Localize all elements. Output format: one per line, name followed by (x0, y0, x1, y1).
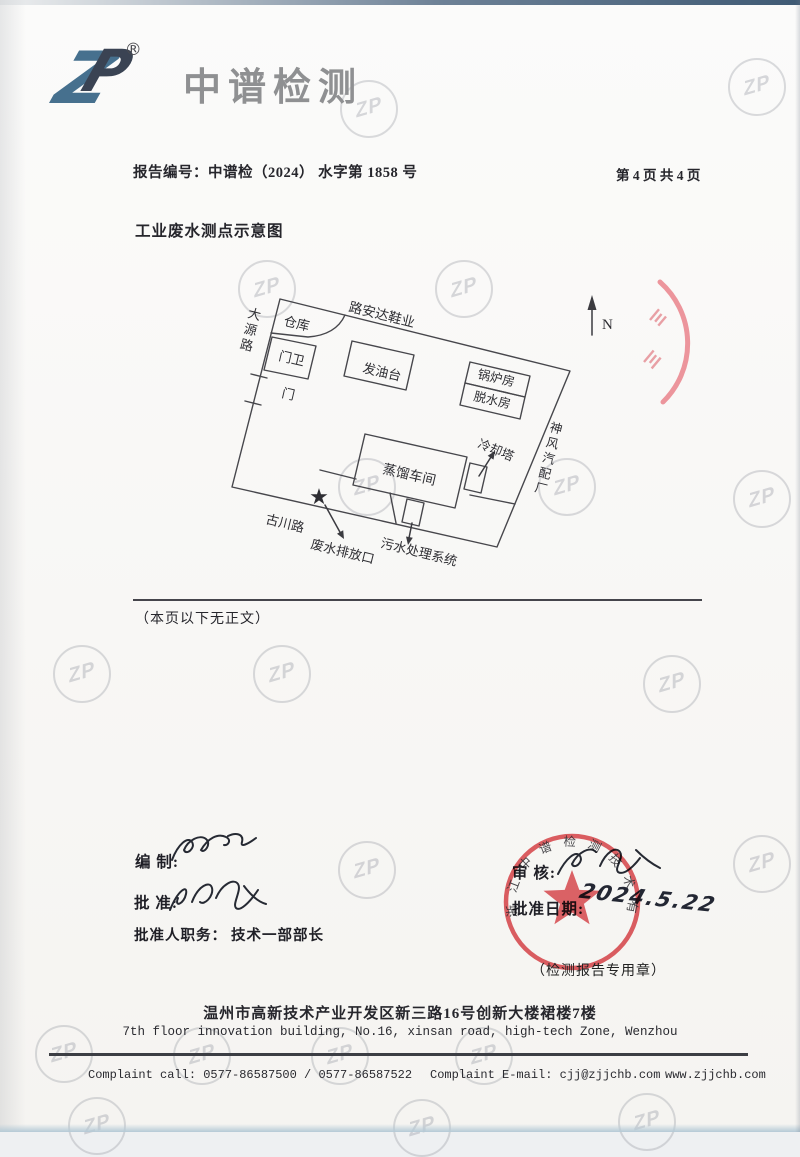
section-title: 工业废水测点示意图 (135, 219, 284, 241)
approver-title-label: 批准人职务： (134, 928, 227, 944)
sewage-treatment-box (402, 499, 424, 526)
watermark-zp-logo: ZP (338, 841, 396, 899)
label-gate: 门 (280, 385, 296, 403)
complaint-phone: Complaint call: 0577-86587500 / 0577-865… (88, 1068, 412, 1082)
label-oil-platform: 发油台 (361, 360, 402, 383)
inner-wall-right (470, 495, 515, 504)
north-arrowhead-icon (588, 295, 597, 310)
company-name: 中谱检测 (183, 56, 363, 111)
seal-caption: （检测报告专用章） (531, 960, 666, 980)
label-boiler-room: 锅炉房 (476, 366, 516, 389)
scan-edge-bottom (0, 1124, 800, 1132)
address-english: 7th floor innovation building, No.16, xi… (0, 1025, 800, 1039)
edge-seal-partial (598, 248, 718, 418)
address-chinese: 温州市高新技术产业开发区新三路16号创新大楼裙楼7楼 (0, 1002, 800, 1023)
company-logo: ZP® (60, 38, 142, 122)
approved-by-signature (166, 876, 270, 922)
report-page: ZPZPZPZPZPZPZPZPZPZPZPZPZPZPZPZPZPZPZP Z… (0, 0, 800, 1132)
approver-title-value: 技术一部部长 (231, 928, 324, 944)
label-warehouse: 仓库 (282, 313, 311, 333)
watermark-zp-logo: ZP (733, 470, 791, 528)
prepared-by-signature (168, 830, 260, 872)
edge-seal-fragment (644, 351, 661, 369)
watermark-zp-logo: ZP (643, 655, 701, 713)
label-road-bottom: 古川路 (264, 511, 305, 535)
label-dewatering-room: 脱水房 (472, 388, 512, 411)
site-plan-diagram: N ★ 路安达鞋业 大源路 神风汽配厂 仓库 门卫 门 发油台 锅炉房 脱水房 … (150, 257, 660, 589)
watermark-zp-logo: ZP (53, 645, 111, 703)
site-boundary (232, 299, 570, 547)
registered-trademark-icon: ® (125, 40, 142, 60)
sewage-arrow (409, 523, 412, 538)
inner-wall-left (320, 470, 356, 479)
watermark-zp-logo: ZP (618, 1093, 676, 1151)
edge-seal-fragment (650, 309, 667, 326)
seal-star-icon (544, 870, 601, 924)
label-road-left: 大源路 (239, 305, 263, 354)
page-indicator: 第 4 页 共 4 页 (616, 164, 700, 184)
label-sewage-treatment: 污水处理系统 (379, 535, 458, 568)
watermark-zp-logo: ZP (733, 835, 791, 893)
scan-edge-right (795, 0, 800, 1132)
watermark-zp-logo: ZP (253, 645, 311, 703)
footer-divider (49, 1053, 748, 1056)
section-divider (133, 599, 702, 601)
label-distillation-workshop: 蒸馏车间 (381, 460, 437, 488)
label-gatehouse: 门卫 (277, 348, 306, 368)
label-discharge-outlet: 废水排放口 (309, 536, 376, 566)
corridor-line (390, 493, 396, 523)
inspection-report-seal: 浙江中谱检测技术有限公司 (492, 822, 652, 982)
complaint-email: Complaint E-mail: cjj@zjjchb.com (430, 1068, 660, 1082)
gate-tick-upper (251, 374, 267, 378)
scan-edge-top (0, 0, 800, 5)
report-number: 报告编号：中谱检（2024） 水字第 1858 号 (133, 161, 417, 182)
label-neighbor-right: 神风汽配厂 (533, 420, 564, 497)
watermark-zp-logo: ZP (728, 58, 786, 116)
label-cooling-tower: 冷却塔 (476, 437, 516, 464)
approver-title-row: 批准人职务： 技术一部部长 (134, 924, 324, 945)
label-road-top: 路安达鞋业 (347, 299, 416, 330)
website-url: www.zjjchb.com (665, 1068, 766, 1082)
no-further-text-note: （本页以下无正文） (135, 608, 270, 628)
